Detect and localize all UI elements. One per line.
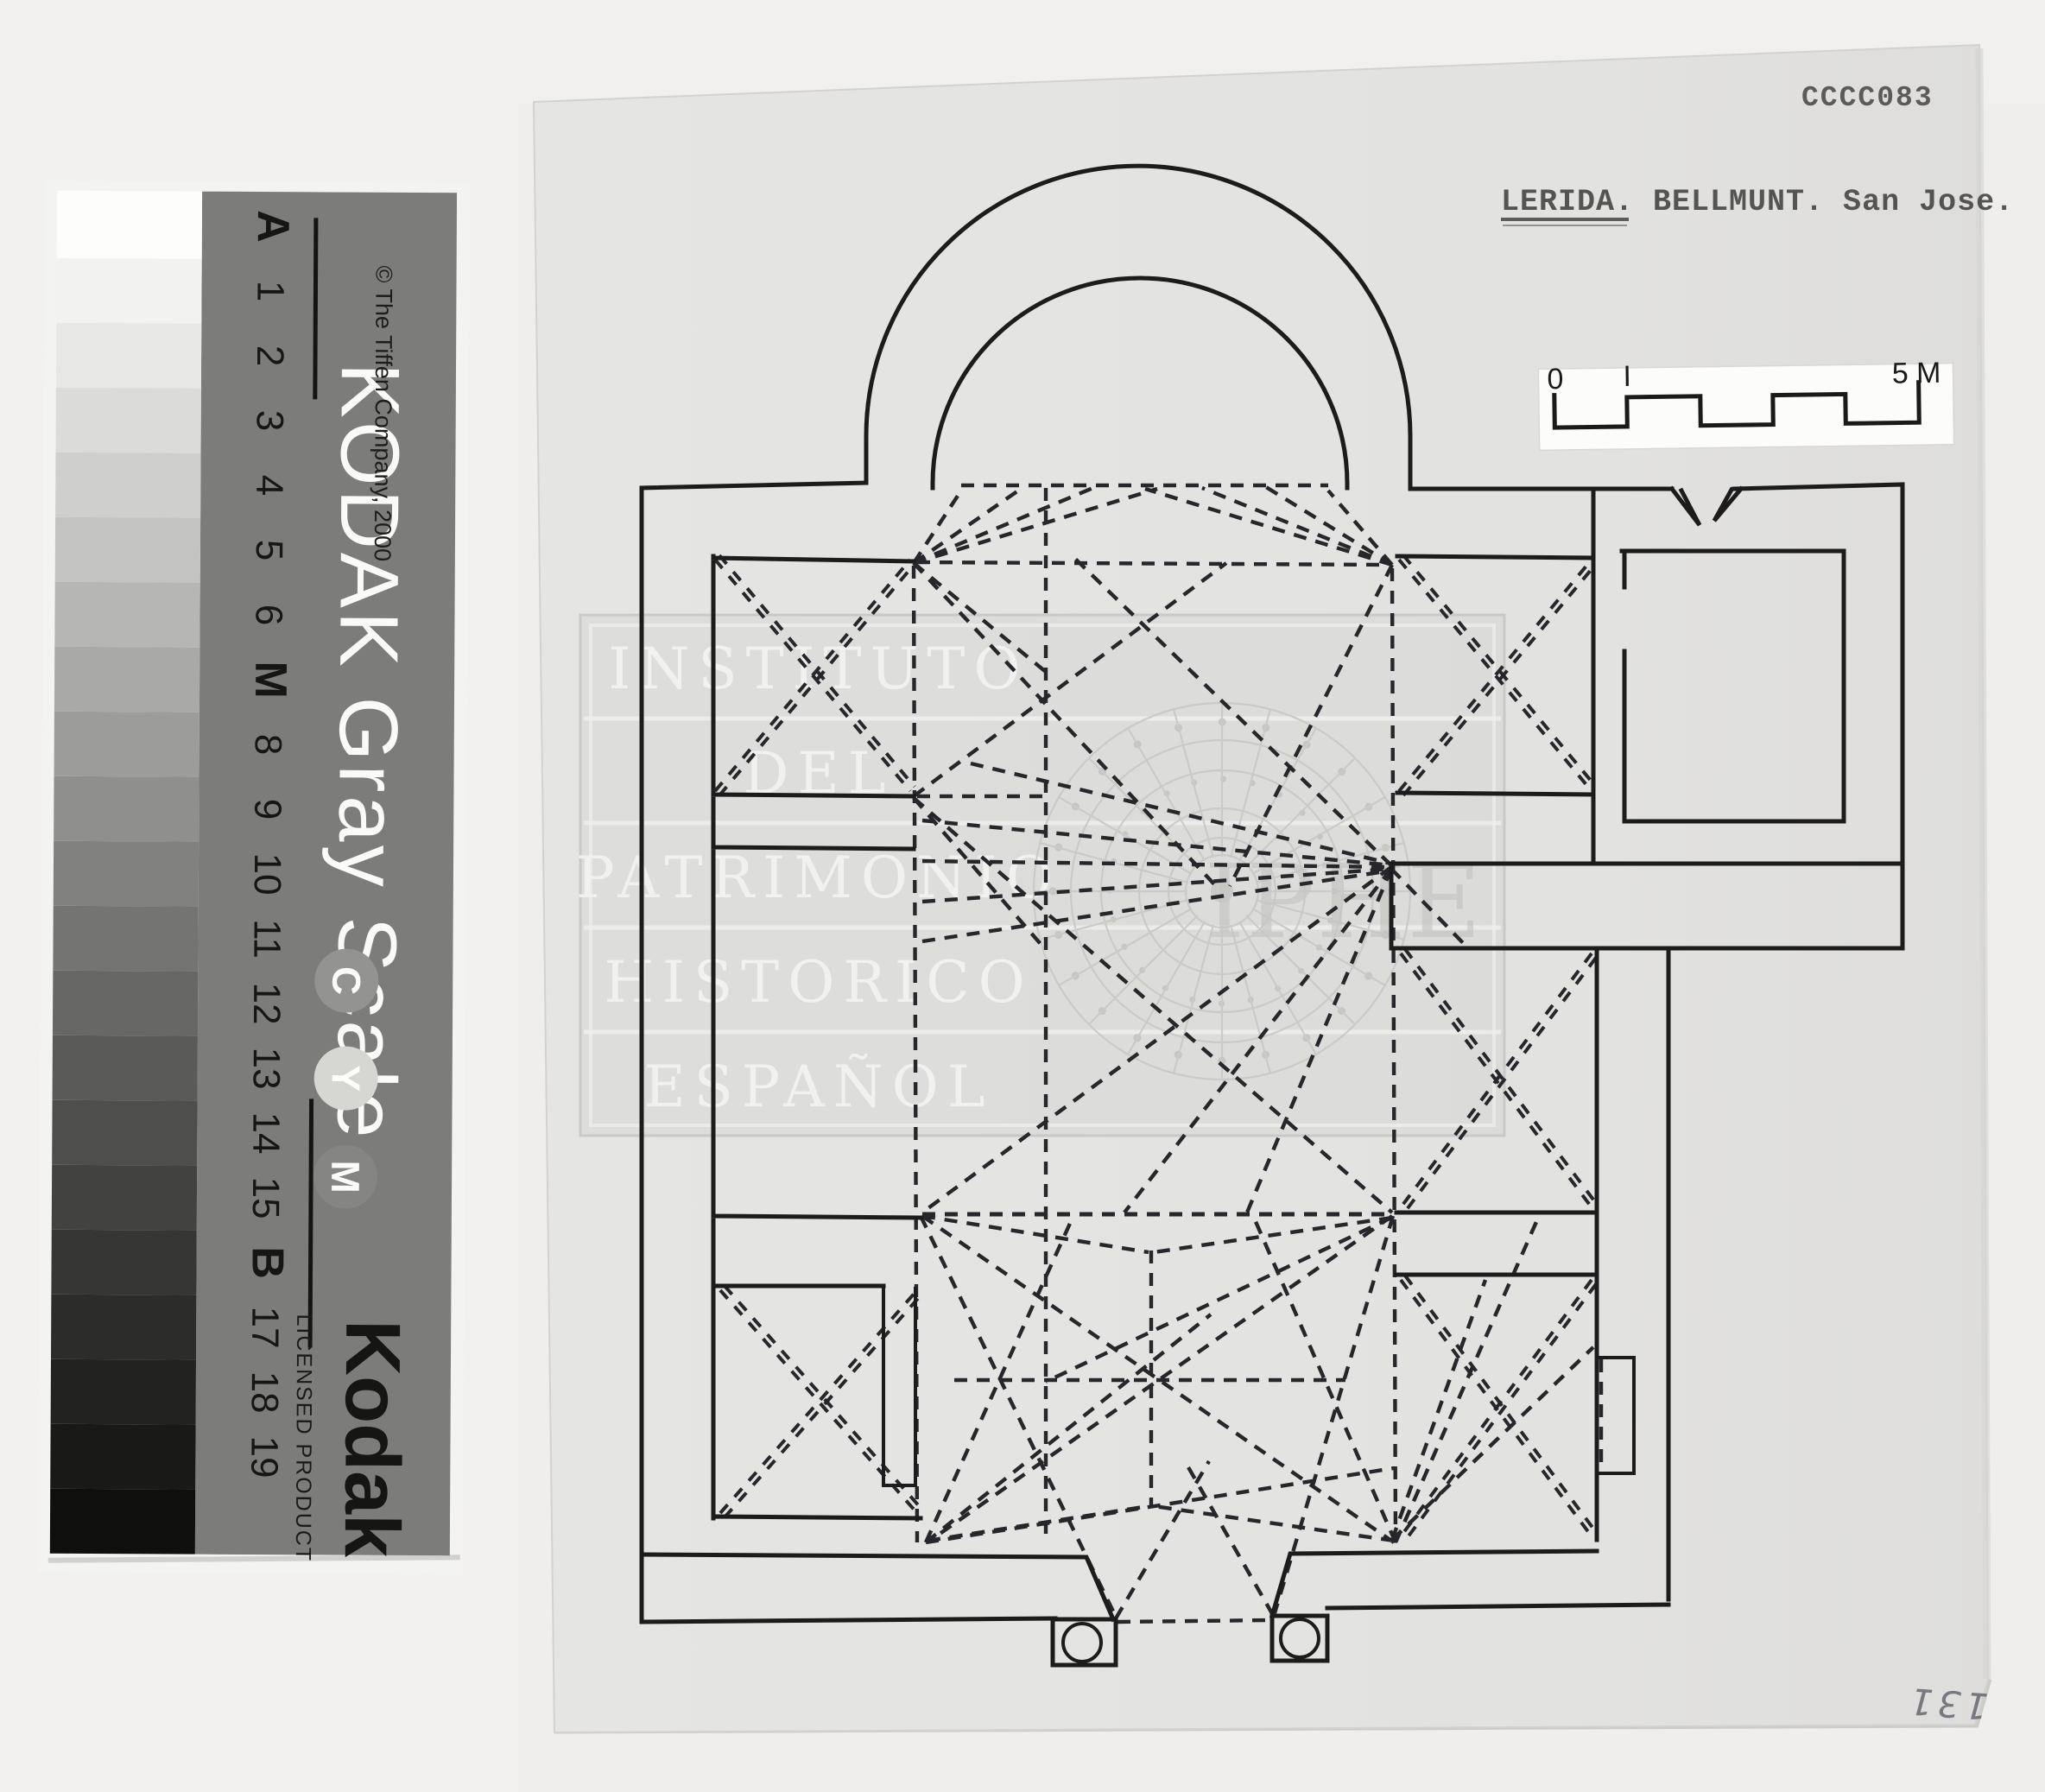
ink-dots: C Y M xyxy=(313,948,379,1208)
gray-patch xyxy=(51,1295,196,1360)
gray-patch-column xyxy=(50,191,202,1555)
gray-patch xyxy=(54,776,199,842)
scale-label-five-m: 5 M xyxy=(1892,357,1941,390)
gray-patch xyxy=(56,323,201,389)
gray-patch xyxy=(51,1230,196,1295)
gray-patch xyxy=(50,1424,195,1490)
scale-label-zero: 0 xyxy=(1547,363,1563,396)
gray-patch xyxy=(54,582,199,648)
kodak-logo: Kodak xyxy=(328,1320,415,1559)
patch-label: 1 xyxy=(249,281,291,302)
yellow-letter: Y xyxy=(324,1065,369,1092)
gray-patch xyxy=(54,647,199,712)
scale-label-one: I xyxy=(1623,360,1631,393)
patch-label: B xyxy=(242,1246,292,1279)
page-number: 131 xyxy=(1904,1680,1989,1728)
patch-label: 6 xyxy=(247,605,289,626)
patch-label: 2 xyxy=(249,345,291,367)
patch-label: 11 xyxy=(245,919,288,959)
plan-title: LERIDA. BELLMUNT. San Jose. xyxy=(1501,185,2014,219)
patch-label: 3 xyxy=(249,410,291,432)
gray-patch xyxy=(55,517,200,583)
kodak-title: KODAK Gray Scale xyxy=(320,363,416,1142)
gray-patch xyxy=(53,906,198,972)
negative-code: CCCC083 xyxy=(1801,82,1934,114)
patch-label: 17 xyxy=(244,1306,286,1348)
patch-label: 5 xyxy=(248,540,290,561)
gray-patch xyxy=(51,1359,196,1425)
patch-label: 8 xyxy=(247,734,289,756)
patch-label: 10 xyxy=(246,852,288,895)
gray-patch xyxy=(53,971,198,1036)
kodak-licensed-product: LICENSED PRODUCT xyxy=(291,1314,317,1562)
patch-label: 12 xyxy=(245,982,288,1024)
kodak-gray-scale-strip: A 1 2 3 4 5 6 M 8 9 10 11 12 13 14 15 B … xyxy=(38,180,470,1575)
scan-canvas: INSTITUTO DEL PATRIMONIO HISTORICO ESPAÑ… xyxy=(0,0,2045,1792)
patch-label: 19 xyxy=(243,1435,285,1478)
patch-label: 13 xyxy=(245,1047,288,1089)
watermark-row-3: PATRIMONIO xyxy=(576,845,1061,911)
gray-patch xyxy=(54,841,199,907)
patch-label: A xyxy=(248,210,298,243)
gray-patch xyxy=(57,191,202,259)
magenta-letter: M xyxy=(323,1160,368,1194)
gray-patch xyxy=(55,388,200,453)
cyan-letter: C xyxy=(324,966,369,996)
patch-label: 18 xyxy=(244,1371,286,1413)
patch-label: 9 xyxy=(246,799,288,820)
patch-label: 14 xyxy=(244,1111,287,1154)
gray-patch xyxy=(52,1165,197,1231)
title-rule-top xyxy=(315,218,316,399)
scale-bar: 0 I 5 M xyxy=(1538,356,1953,451)
watermark-row-5: ESPAÑOL xyxy=(643,1054,993,1120)
patch-label: M xyxy=(245,661,295,699)
patch-label: 15 xyxy=(244,1176,287,1219)
gray-patch xyxy=(54,712,199,777)
gray-patch xyxy=(50,1489,195,1555)
archival-scan: INSTITUTO DEL PATRIMONIO HISTORICO ESPAÑ… xyxy=(0,0,2045,1792)
gray-patch xyxy=(53,1035,198,1101)
patch-label: 4 xyxy=(248,475,290,497)
gray-patch xyxy=(56,258,201,324)
gray-patch xyxy=(55,453,200,518)
gray-patch xyxy=(52,1100,197,1166)
title-rule-bottom xyxy=(310,1099,312,1347)
kodak-copyright: © The Tiffen Company, 2000 xyxy=(370,265,397,561)
watermark-row-4: HISTORICO xyxy=(604,949,1033,1016)
